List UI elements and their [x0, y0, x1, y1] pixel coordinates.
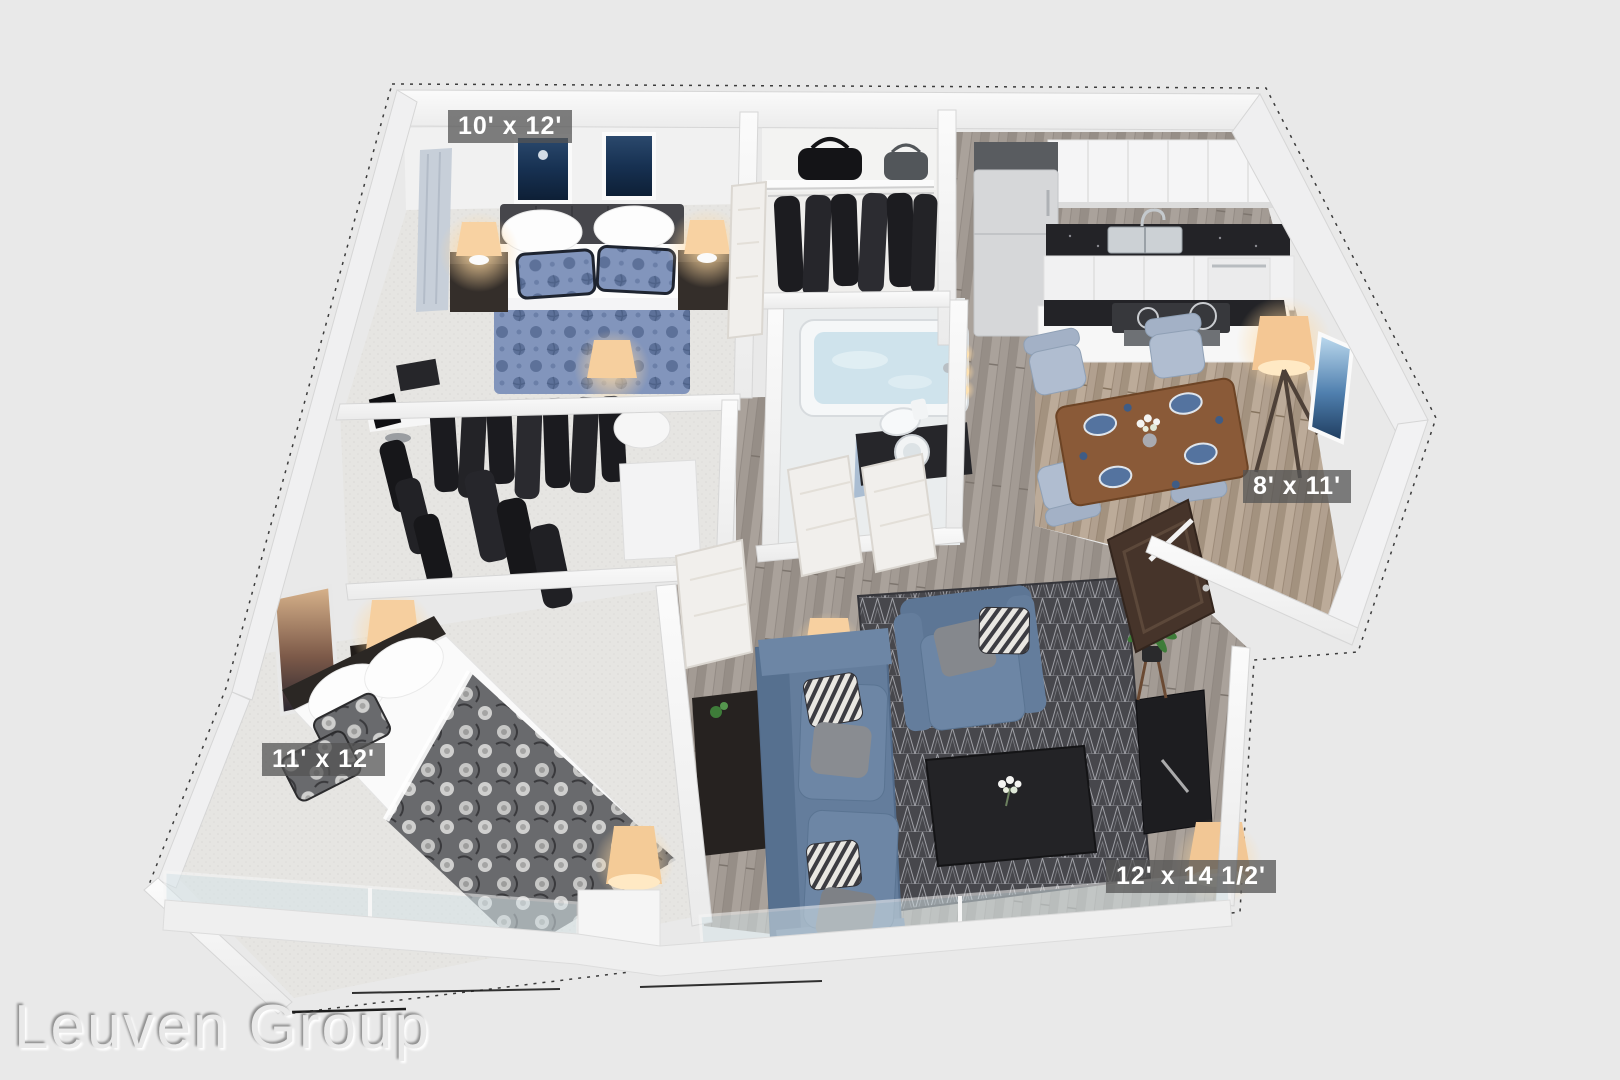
- wall-art-frame: [604, 134, 654, 198]
- coffee-table: [926, 746, 1096, 866]
- wall-art-frame: [516, 136, 570, 202]
- duffel-bag: [798, 148, 862, 180]
- duvet-fold: [494, 298, 690, 310]
- pillow: [594, 206, 674, 250]
- laundry-basket: [614, 408, 670, 448]
- throw-pillow: [802, 672, 864, 729]
- door-handle: [1203, 585, 1210, 592]
- floorplan-image: 10' x 12' 8' x 11' 11' x 12' 12' x 14 1/…: [0, 0, 1620, 1080]
- lamp-shade-bottom: [608, 874, 660, 890]
- room-dimension-label-bedroom-2: 11' x 12': [262, 743, 385, 776]
- accent-pillow: [597, 246, 675, 294]
- wall-art-moon: [538, 150, 548, 160]
- table-lamp: [456, 222, 502, 256]
- water-ripple: [888, 375, 932, 389]
- accent-pillow: [517, 249, 596, 298]
- storage-unit: [620, 460, 701, 560]
- small-plant: [710, 706, 722, 718]
- company-watermark: Leuven Group: [14, 992, 431, 1063]
- cabinet-shadow: [1048, 202, 1284, 208]
- throw-pillow: [806, 839, 863, 890]
- room-dimension-label-dining: 8' x 11': [1243, 470, 1351, 503]
- small-plant-leaf: [720, 702, 728, 710]
- wall-bath-north: [762, 291, 950, 309]
- room-dimension-label-bedroom-1: 10' x 12': [448, 110, 572, 143]
- wall-art-frame: [1310, 334, 1352, 442]
- dining-chair: [1144, 312, 1208, 379]
- table-lamp: [684, 220, 730, 254]
- console-table: [692, 690, 770, 856]
- floor-lamp: [587, 340, 637, 378]
- interior-door: [676, 540, 752, 668]
- sliding-closet-door: [728, 182, 766, 338]
- throw-pillow: [979, 607, 1030, 654]
- closet-shelf: [766, 180, 934, 187]
- room-dimension-label-living-room: 12' x 14 1/2': [1106, 860, 1276, 893]
- throw-pillow: [809, 721, 872, 779]
- floorplan-render: [0, 0, 1620, 1080]
- handbag: [884, 152, 928, 180]
- armchair: [891, 584, 1048, 734]
- interior-door: [788, 456, 862, 576]
- lamp-base: [469, 255, 489, 265]
- tv-stand: [1136, 690, 1212, 834]
- interior-door: [862, 454, 936, 572]
- water-ripple: [832, 351, 888, 369]
- lamp-base: [697, 253, 717, 263]
- bathtub-water: [814, 332, 954, 404]
